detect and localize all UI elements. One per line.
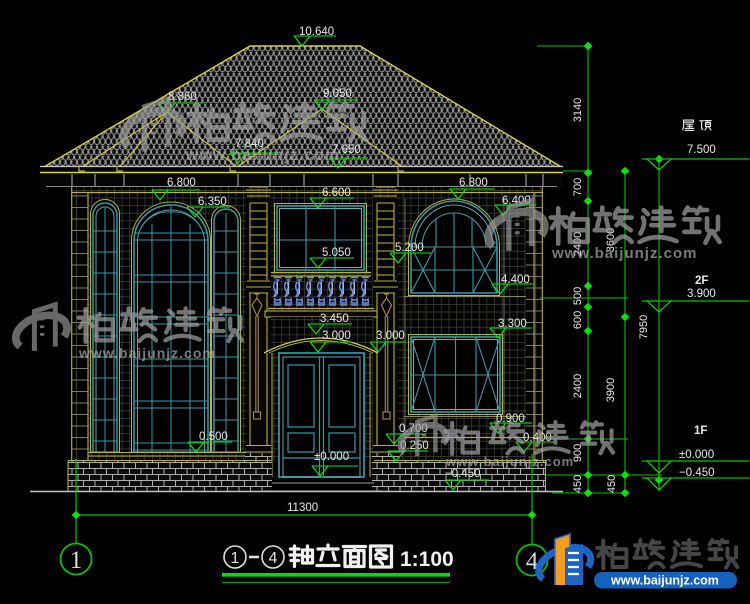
- svg-text:1:100: 1:100: [400, 548, 454, 571]
- svg-text:±0.000: ±0.000: [314, 451, 349, 463]
- svg-text:1F: 1F: [694, 425, 707, 437]
- svg-text:6.600: 6.600: [322, 187, 351, 199]
- svg-text:2400: 2400: [572, 374, 584, 398]
- svg-text:3.300: 3.300: [498, 318, 527, 330]
- svg-text:4: 4: [269, 550, 278, 567]
- svg-text:−0.450: −0.450: [445, 468, 481, 480]
- svg-text:500: 500: [572, 287, 584, 305]
- svg-text:700: 700: [572, 178, 584, 196]
- svg-text:www.baijunjz.com: www.baijunjz.com: [610, 574, 719, 588]
- svg-text:450: 450: [572, 475, 584, 493]
- svg-text:3140: 3140: [572, 98, 584, 122]
- svg-text:3.900: 3.900: [687, 288, 716, 300]
- svg-text:www.baijunjz.com: www.baijunjz.com: [445, 454, 574, 469]
- svg-text:11300: 11300: [287, 502, 318, 514]
- svg-text:7950: 7950: [638, 315, 650, 339]
- svg-text:±0.000: ±0.000: [679, 449, 714, 461]
- svg-text:www.baijunjz.com: www.baijunjz.com: [551, 245, 697, 262]
- svg-text:3.000: 3.000: [322, 330, 351, 342]
- svg-text:www.baijunjz.com: www.baijunjz.com: [185, 147, 340, 164]
- svg-text:8.860: 8.860: [168, 91, 197, 103]
- svg-text:1: 1: [70, 547, 83, 574]
- svg-text:6.350: 6.350: [198, 196, 227, 208]
- svg-text:0.500: 0.500: [199, 431, 228, 443]
- svg-text:3.450: 3.450: [320, 313, 349, 325]
- svg-text:2F: 2F: [695, 275, 708, 287]
- svg-text:5.050: 5.050: [322, 247, 351, 259]
- svg-text:1: 1: [231, 550, 240, 567]
- svg-text:−0.450: −0.450: [679, 467, 715, 479]
- svg-text:3900: 3900: [605, 378, 617, 402]
- svg-text:www.baijunjz.com: www.baijunjz.com: [78, 345, 216, 361]
- svg-text:6.800: 6.800: [167, 177, 196, 189]
- svg-text:4.400: 4.400: [501, 274, 530, 286]
- svg-text:3.000: 3.000: [376, 330, 405, 342]
- svg-text:450: 450: [606, 475, 618, 493]
- svg-text:9.050: 9.050: [323, 88, 352, 100]
- svg-text:7.500: 7.500: [687, 144, 716, 156]
- svg-text:10.640: 10.640: [299, 26, 334, 38]
- svg-text:5.200: 5.200: [395, 242, 424, 254]
- svg-text:600: 600: [572, 311, 584, 329]
- svg-text:6.800: 6.800: [459, 177, 488, 189]
